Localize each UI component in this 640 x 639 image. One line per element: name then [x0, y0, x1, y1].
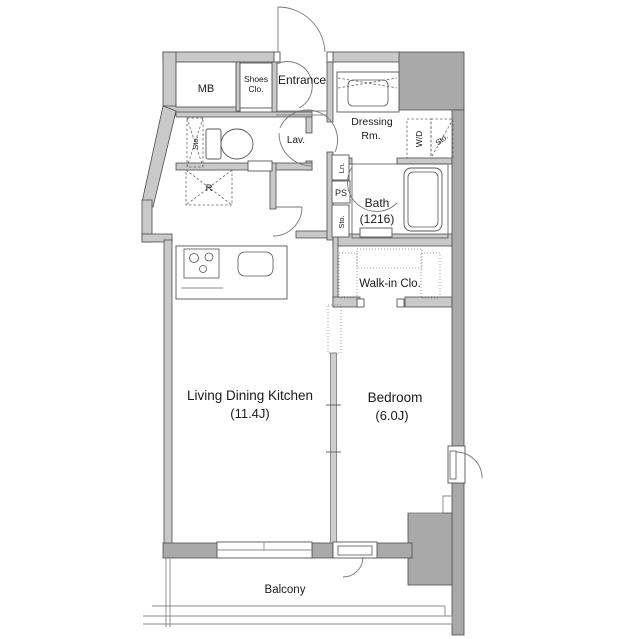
walkin-hanger-left — [339, 253, 357, 298]
wall-corner-block-top-right — [399, 52, 464, 110]
wall-bath-bottom — [333, 234, 452, 246]
label-storage-lavatory: Sto. — [191, 136, 200, 149]
label-mb: MB — [198, 83, 215, 95]
label-pipe-space: PS — [335, 188, 347, 198]
wall-walkin-bottom-left — [333, 297, 360, 307]
bedroom-right-door-frame — [448, 446, 465, 483]
bedroom-balcony-door-frame — [333, 542, 377, 558]
label-ldk-line1: Living Dining Kitchen — [187, 388, 313, 403]
label-balcony: Balcony — [265, 584, 306, 596]
wall-right-lower — [452, 482, 464, 635]
label-bath-line1: Bath — [365, 196, 390, 210]
wall-lavatory-bottom — [176, 163, 312, 170]
label-bath-line2: (1216) — [360, 212, 395, 226]
wall-hall-east-upper — [327, 62, 333, 122]
bathtub — [404, 168, 442, 231]
label-bedroom-line1: Bedroom — [368, 390, 423, 405]
bath-sill — [360, 228, 392, 237]
label-dressing-line1: Dressing — [351, 116, 393, 128]
wall-walkin-left — [333, 236, 338, 307]
door-jamb-left — [274, 52, 280, 62]
door-jamb-right — [327, 52, 333, 62]
partition-ldk-bedroom — [326, 305, 341, 543]
label-linen: Ln. — [337, 163, 346, 173]
wall-left-lower — [164, 240, 172, 548]
wall-top-left — [163, 52, 278, 62]
wall-step-outline — [408, 496, 452, 513]
label-storage-hall: Sto. — [337, 215, 346, 228]
toilet-bowl — [221, 129, 253, 159]
wall-corner-block-bottom-right — [408, 513, 452, 585]
walkin-hanger-top — [357, 249, 422, 268]
wall-walkin-bottom-right — [405, 297, 452, 307]
label-washer-dryer: W/D — [414, 131, 424, 148]
wall-bottom-right — [375, 543, 412, 558]
label-storage-dressing: Sto. — [434, 132, 450, 147]
walkin-door-jamb-right — [397, 299, 404, 307]
bedroom-balcony-door-arc — [343, 557, 363, 577]
floor-plan-svg: MB Shoes Clo. Entrance Lav. Sto. R Dress… — [0, 0, 640, 639]
wall-right-upper — [452, 110, 464, 448]
label-lavatory: Lav. — [287, 135, 305, 146]
label-dressing-line2: Rm. — [361, 130, 380, 142]
entrance-door-arc — [278, 7, 325, 52]
wall-left-diagonal — [142, 106, 176, 207]
label-walk-in-closet: Walk-in Clo. — [359, 278, 421, 290]
wall-bottom-mid — [312, 543, 333, 558]
label-shoes-line1: Shoes — [244, 74, 268, 84]
wall-lavatory-right-upper — [306, 117, 312, 133]
floor-plan-page: MB Shoes Clo. Entrance Lav. Sto. R Dress… — [0, 0, 640, 639]
wall-top-right — [330, 52, 400, 62]
wall-mb-shoes — [236, 62, 240, 111]
toilet-tank — [206, 129, 221, 159]
partition-wall — [331, 353, 337, 543]
wall-left-top — [163, 52, 176, 114]
label-refrigerator: R — [206, 183, 213, 194]
wall-bath-top-right — [397, 158, 452, 164]
partition-hatch-strip — [328, 305, 341, 353]
wall-bottom-left — [163, 543, 218, 558]
wall-shoes-entrance — [272, 62, 277, 112]
label-shoes-line2: Clo. — [248, 84, 263, 94]
walkin-hanger-right — [421, 253, 440, 298]
label-bedroom-line2: (6.0J) — [375, 408, 408, 423]
walkin-door-jamb-left — [357, 299, 364, 307]
label-entrance: Entrance — [278, 73, 326, 87]
lavatory-step — [248, 161, 272, 171]
label-ldk-line2: (11.4J) — [230, 406, 270, 421]
